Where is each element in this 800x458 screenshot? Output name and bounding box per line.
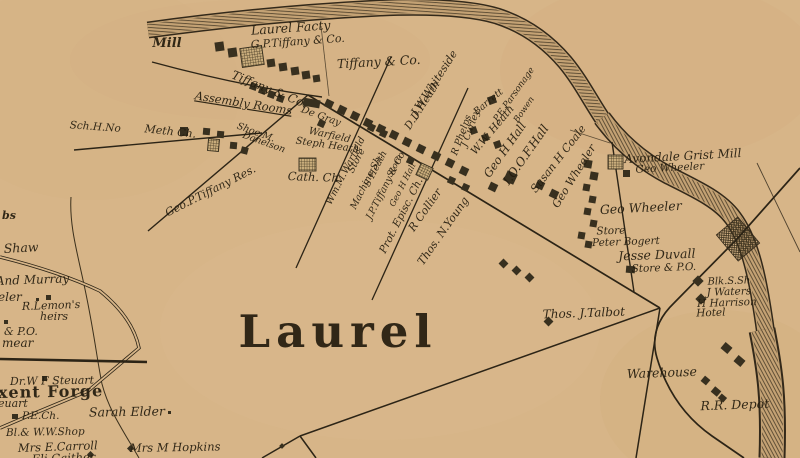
building-marker	[266, 58, 275, 67]
building-marker	[207, 139, 219, 152]
map-label: Mrs M Hopkins	[129, 439, 221, 455]
laurel-village-map: MillLaurel FactyG.P.Tiffany & Co.Tiffany…	[0, 0, 800, 458]
building-marker	[608, 155, 623, 169]
building-marker	[12, 414, 18, 419]
map-label: Eli Gaither	[31, 450, 97, 458]
map-label: Sarah Elder	[89, 403, 166, 419]
map-label: Mill	[151, 36, 181, 51]
building-marker	[168, 411, 171, 414]
map-label: euart	[0, 397, 28, 410]
map-label: Thos. J.Talbot	[543, 305, 626, 322]
building-marker	[301, 70, 310, 79]
map-label: Bl.& W.W.Shop	[5, 426, 85, 439]
building-marker	[230, 142, 238, 150]
building-marker	[214, 41, 224, 51]
building-marker	[227, 47, 237, 57]
town-name-label: Laurel	[239, 305, 438, 358]
building-marker	[623, 170, 630, 177]
building-marker	[577, 231, 585, 239]
map-label: R.R. Depot	[699, 396, 770, 413]
building-marker	[588, 195, 596, 203]
map-label: And Murray	[0, 271, 70, 288]
map-label: Hotel	[695, 306, 726, 319]
building-marker	[217, 131, 225, 139]
map-label: Warehouse	[627, 364, 698, 381]
map-label: P.E.Ch.	[21, 410, 59, 422]
map-label: heirs	[40, 310, 68, 323]
building-marker	[278, 62, 287, 71]
map-canvas: MillLaurel FactyG.P.Tiffany & Co.Tiffany…	[0, 0, 800, 458]
building-marker	[4, 320, 8, 324]
map-label: eler	[0, 290, 23, 304]
building-marker	[582, 183, 590, 191]
building-marker	[290, 66, 299, 75]
building-marker	[589, 171, 598, 180]
map-label: bs	[2, 209, 16, 222]
map-label: Shaw	[3, 239, 39, 256]
building-marker	[583, 207, 591, 215]
map-label: Store & P.O.	[631, 261, 696, 275]
building-marker	[313, 75, 321, 83]
map-label: mear	[2, 336, 35, 350]
building-marker	[203, 128, 211, 136]
